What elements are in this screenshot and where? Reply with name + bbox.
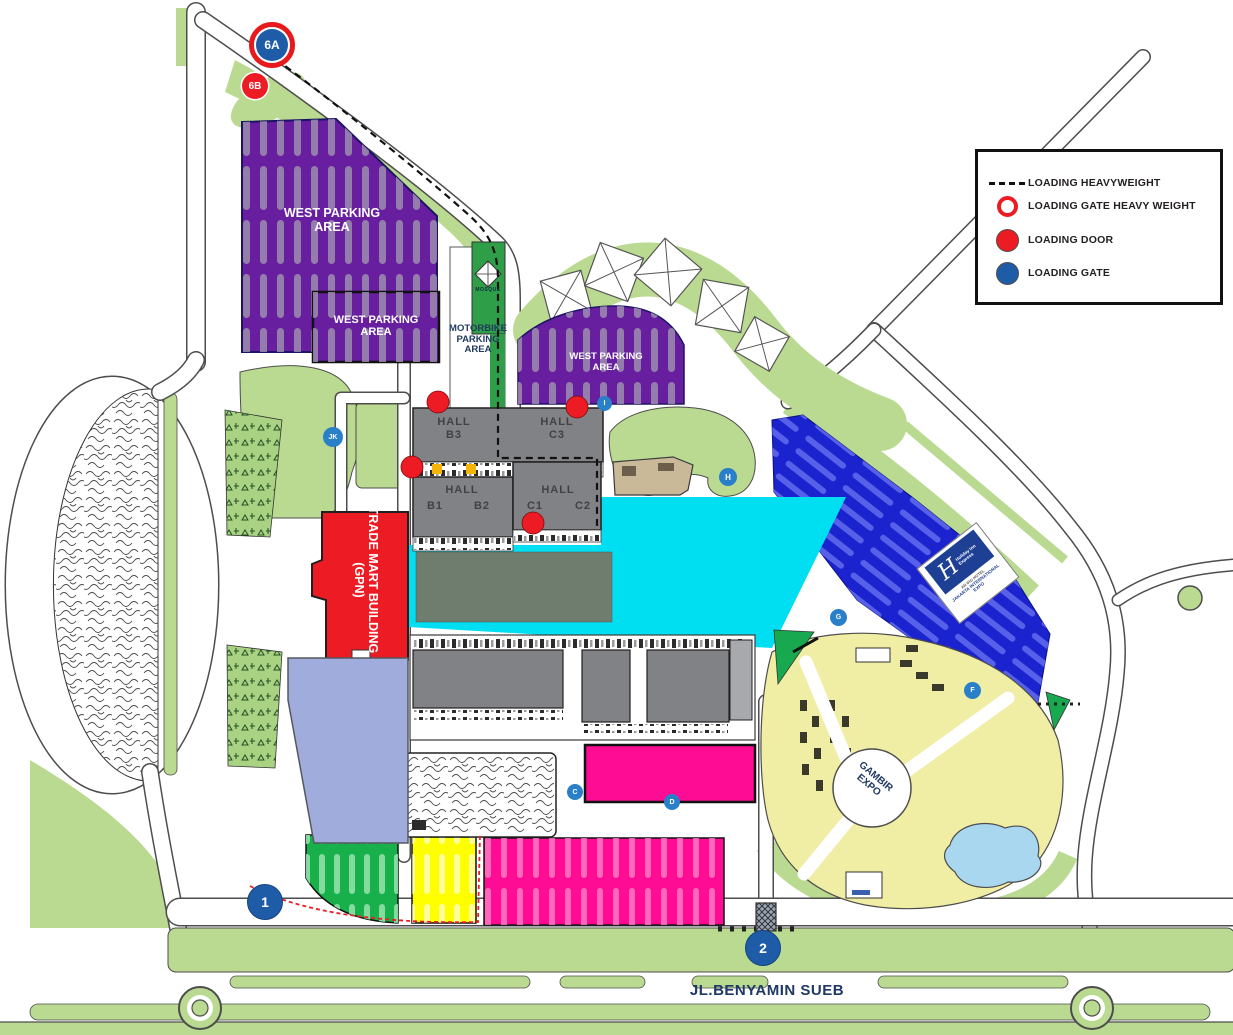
boulevard <box>0 928 1233 1035</box>
venue-site-map: WEST PARKING AREA WEST PARKING AREA WEST… <box>0 0 1233 1035</box>
legend-row-gate-heavyweight: LOADING GATE HEAVY WEIGHT <box>986 194 1196 218</box>
west-parking-large-label: WEST PARKING AREA <box>277 206 387 234</box>
gate-1-marker: 1 <box>247 884 283 920</box>
marker-c: C <box>567 784 583 800</box>
marker-f: F <box>964 682 981 699</box>
oval-park <box>14 385 282 785</box>
loading-door-c3 <box>566 396 588 418</box>
roundabout-west <box>179 987 221 1029</box>
legend: LOADING HEAVYWEIGHT LOADING GATE HEAVY W… <box>975 149 1223 305</box>
hall-b12-label: HALL <box>432 484 492 496</box>
trade-mart-label: TRADE MART BUILDING (GPN) <box>352 500 380 660</box>
west-parking-mid-label: WEST PARKING AREA <box>558 352 654 373</box>
tan-building <box>613 457 693 495</box>
legend-row-loading-door: LOADING DOOR <box>986 228 1113 252</box>
pond <box>945 823 1041 887</box>
blue-circle-icon <box>986 262 1028 285</box>
door-6b-marker: 6B <box>242 73 268 99</box>
dashed-line-icon <box>986 182 1028 185</box>
legend-label: LOADING GATE <box>1028 267 1110 279</box>
road-label: JL.BENYAMIN SUEB <box>667 983 867 1000</box>
hall-c12-label: HALL <box>528 484 588 496</box>
marker-g: G <box>830 609 847 626</box>
hall-b2-code: B2 <box>467 500 497 512</box>
olive-platform <box>416 552 612 622</box>
marker-d: D <box>664 794 680 810</box>
gate-6a-marker: 6A <box>256 29 288 61</box>
loading-door-c1 <box>522 512 544 534</box>
loading-door-b1 <box>401 456 423 478</box>
legend-label: LOADING GATE HEAVY WEIGHT <box>1028 200 1196 212</box>
red-ring-icon <box>986 196 1028 217</box>
hall-b3-label: HALL <box>424 416 484 428</box>
legend-row-heavyweight: LOADING HEAVYWEIGHT <box>986 171 1161 195</box>
marker-h: H <box>719 468 737 486</box>
lower-halls <box>410 635 755 740</box>
legend-label: LOADING DOOR <box>1028 234 1113 246</box>
motorbike-parking-label: MOTORBIKE PARKING AREA <box>443 324 513 356</box>
legend-row-loading-gate: LOADING GATE <box>986 261 1110 285</box>
roundabout-east <box>1071 987 1113 1029</box>
hall-c1-code: C1 <box>520 500 550 512</box>
hatched-parking <box>404 753 556 837</box>
marker-i: I <box>597 396 612 411</box>
mosque-label: MOSQUE <box>470 288 506 294</box>
hall-c3-label: HALL <box>527 416 587 428</box>
hall-b3-code: B3 <box>424 429 484 441</box>
west-parking-inner-label: WEST PARKING AREA <box>326 314 426 339</box>
hall-b1-code: B1 <box>420 500 450 512</box>
trade-mart-line2: (GPN) <box>352 500 366 660</box>
gate-2-marker: 2 <box>745 930 781 966</box>
red-circle-icon <box>986 229 1028 252</box>
hall-c3-code: C3 <box>527 429 587 441</box>
marker-jk: JK <box>323 427 343 447</box>
legend-label: LOADING HEAVYWEIGHT <box>1028 177 1161 189</box>
trade-mart-line1: TRADE MART BUILDING <box>366 500 380 660</box>
lavender-building <box>288 658 408 843</box>
hall-c2-code: C2 <box>568 500 598 512</box>
loading-door-b3 <box>427 391 449 413</box>
